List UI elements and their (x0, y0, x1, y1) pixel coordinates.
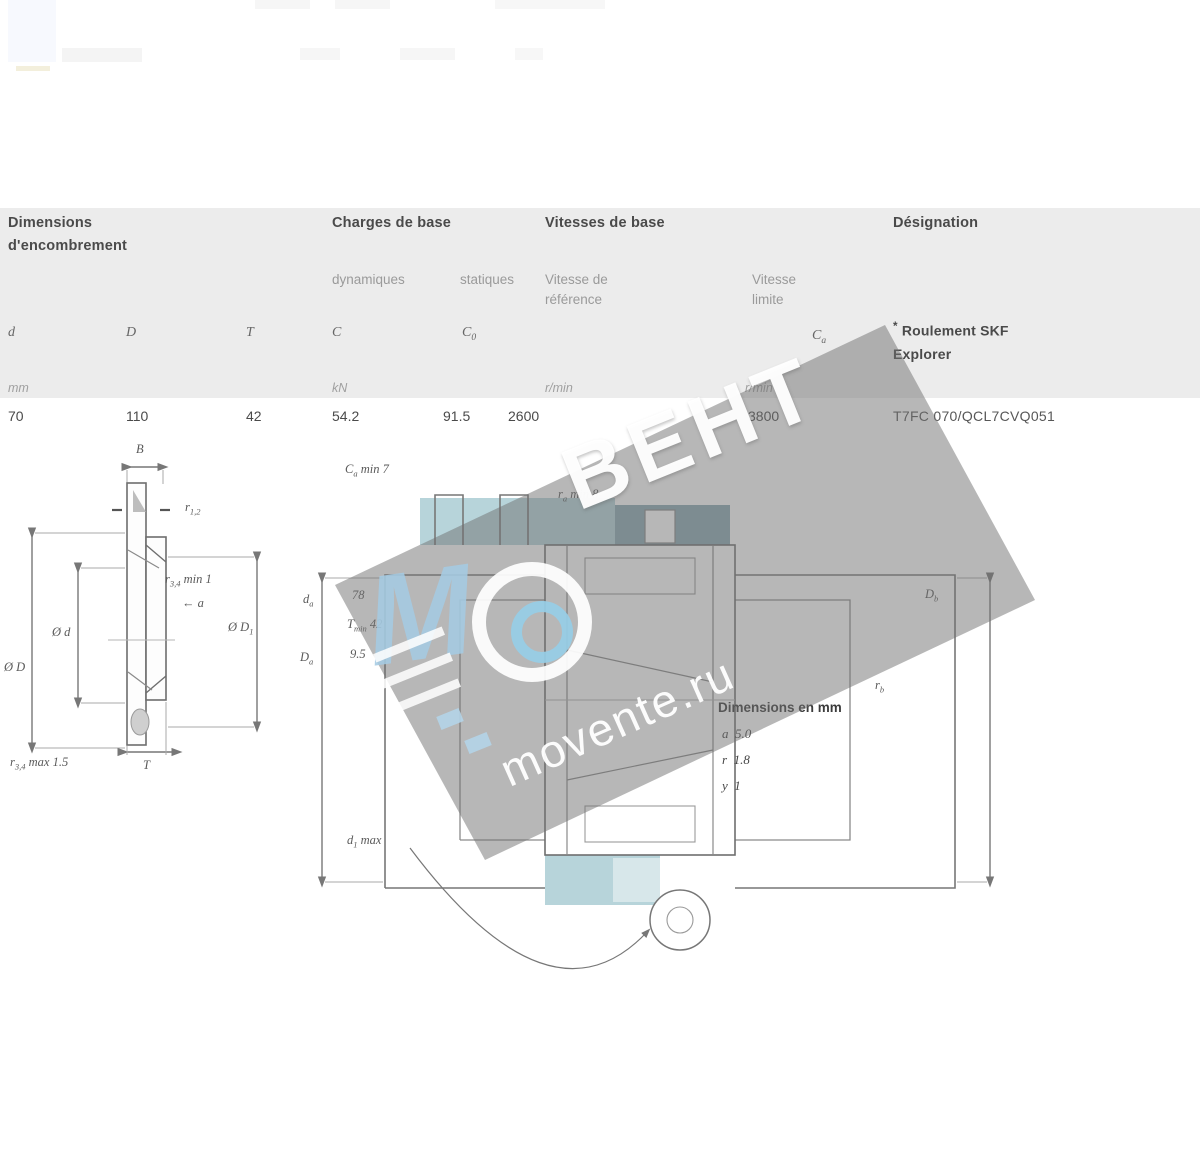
value-bore-d: 70 (8, 408, 24, 424)
unit-rmin-ref: r/min (545, 381, 573, 395)
subheader-dynamic: dynamiques (332, 272, 405, 287)
value-dynamic-C: 54.2 (332, 408, 359, 424)
label-mid-3: 9.5 (350, 647, 366, 664)
subheader-ref-speed-l2: référence (545, 292, 602, 307)
label-da: da (303, 592, 314, 609)
ghost-artifact (16, 66, 50, 71)
column-group-load-ratings: Charges de base (332, 215, 451, 231)
ghost-artifact (495, 0, 605, 9)
note-block-line2: r 1.8 (722, 752, 750, 770)
ghost-artifact (62, 48, 142, 62)
catalog-page: Dimensions d'encombrement Charges de bas… (0, 0, 1200, 1165)
label-B: B (136, 442, 144, 459)
symbol-C0: C0 (462, 325, 476, 343)
ghost-artifact (255, 0, 310, 9)
inner-ring (127, 483, 146, 745)
symbol-Ca: Ca (812, 328, 826, 346)
fillet-detail-circle (650, 890, 710, 950)
ghost-artifact (300, 48, 340, 60)
column-group-dimensions: Dimensions (8, 215, 92, 231)
column-group-speeds: Vitesses de base (545, 215, 665, 231)
ghost-artifact (335, 0, 390, 9)
label-Da: Da (300, 650, 313, 667)
ghost-artifact (400, 48, 455, 60)
column-group-designation: Désignation (893, 215, 978, 231)
unit-kn: kN (332, 381, 347, 395)
note-skf-explorer-l1: * Roulement SKF (893, 320, 1009, 339)
label-r34-max: r3,4 max 1.5 (10, 755, 68, 772)
subheader-limit-speed-l1: Vitesse (752, 272, 796, 287)
watermark-circle-logo (472, 562, 592, 682)
unit-mm: mm (8, 381, 29, 395)
value-width-T: 42 (246, 408, 262, 424)
label-r34-min: r3,4 min 1 (165, 572, 212, 589)
value-outer-D: 110 (126, 408, 148, 424)
watermark-circle-inner (511, 601, 573, 663)
ghost-artifact (8, 0, 56, 62)
rib-detail (131, 709, 149, 735)
symbol-C: C (332, 325, 341, 341)
label-a: ← a (182, 596, 204, 613)
ghost-artifact (515, 48, 543, 60)
label-rb: rb (875, 678, 884, 695)
value-static-C0: 91.5 (443, 408, 470, 424)
subheader-ref-speed-l1: Vitesse de (545, 272, 608, 287)
symbol-d: d (8, 325, 15, 341)
label-r12: r1,2 (185, 500, 201, 517)
subheader-static: statiques (460, 272, 514, 287)
shaft-shoulder-highlight-light (613, 858, 660, 902)
label-dia-D1: Ø D1 (228, 620, 253, 637)
value-ref-speed: 2600 (508, 408, 539, 424)
symbol-D: D (126, 325, 136, 341)
label-T: T (143, 758, 150, 775)
label-Ca-min: Ca min 7 (345, 462, 389, 479)
outer-ring (146, 537, 166, 700)
symbol-T: T (246, 325, 254, 341)
column-group-dimensions-sub: d'encombrement (8, 238, 127, 254)
subheader-limit-speed-l2: limite (752, 292, 784, 307)
label-d1-max: d1 max (347, 833, 381, 850)
note-block-line3: y 1 (722, 778, 741, 796)
label-dia-d: Ø d (52, 625, 70, 642)
label-dia-D: Ø D (4, 660, 25, 677)
